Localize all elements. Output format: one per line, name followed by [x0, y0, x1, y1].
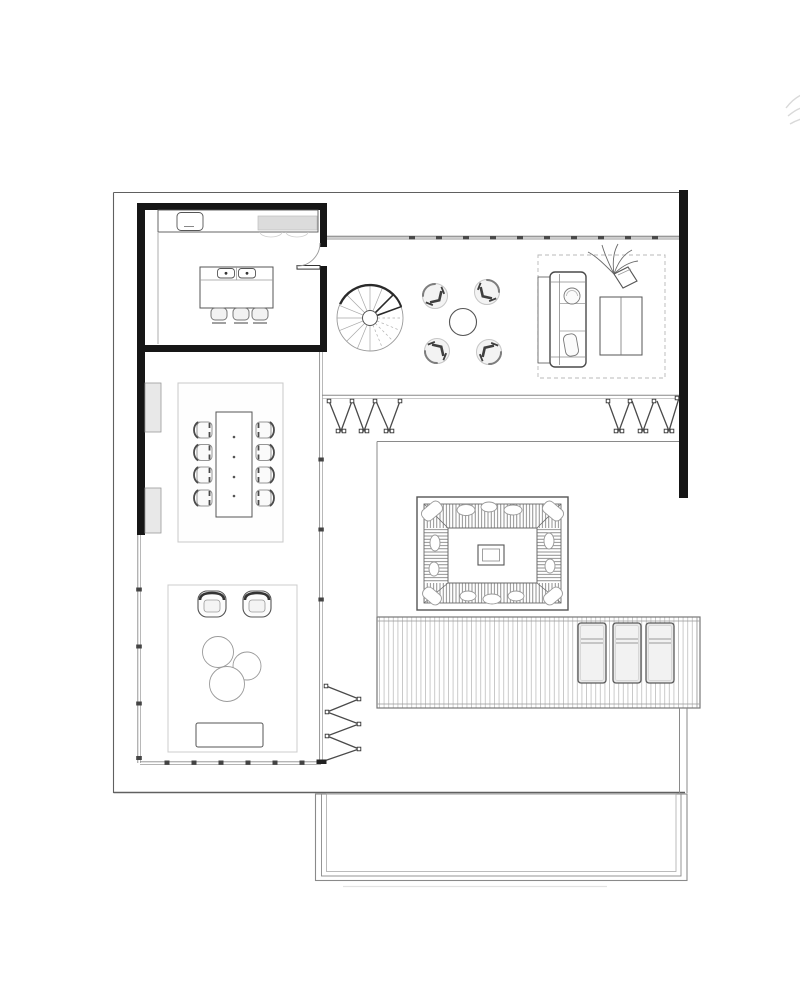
- dining-chair: [256, 490, 274, 506]
- tub-chair: [243, 591, 271, 617]
- dining-room: [145, 383, 283, 542]
- east-glass-wall: [318, 352, 323, 764]
- wall-cabinet: [145, 488, 161, 533]
- floor-plan-page: [0, 0, 800, 1000]
- dining-chair: [194, 490, 212, 506]
- tub-chair: [198, 591, 226, 617]
- dining-chair: [256, 422, 274, 438]
- folding-door-north-right: [606, 396, 679, 433]
- family-lounge: [168, 585, 297, 752]
- pool-terrace: [316, 794, 688, 887]
- kitchen: [158, 210, 320, 344]
- wall-cabinet: [145, 383, 161, 432]
- bar-stool: [233, 308, 249, 323]
- east-wall: [679, 190, 688, 498]
- round-side-table: [450, 309, 477, 336]
- folding-door-north-left: [327, 399, 402, 433]
- dining-chair: [194, 422, 212, 438]
- sofa-console: [538, 277, 550, 363]
- armchair: [417, 278, 452, 313]
- kitchen-door: [297, 243, 320, 269]
- armchair: [419, 333, 454, 368]
- deck-to-pool-connector: [680, 708, 688, 793]
- kitchen-south-wall: [137, 345, 327, 352]
- watermark-fragment: [786, 95, 800, 124]
- sofa: [550, 272, 586, 367]
- folding-door-southeast: [317, 684, 361, 764]
- folding-door-track-north: [322, 395, 679, 398]
- sun-lounger: [646, 623, 674, 683]
- door-swing-arc: [297, 243, 320, 266]
- west-wall: [137, 203, 145, 535]
- dining-table: [216, 412, 252, 517]
- kitchen-island: [200, 267, 273, 308]
- dining-chair: [194, 467, 212, 483]
- dining-chair: [256, 467, 274, 483]
- stair-newel: [363, 311, 378, 326]
- nesting-table: [203, 637, 234, 668]
- bar-stool: [252, 308, 268, 323]
- coffee-table: [600, 297, 642, 355]
- kitchen-east-wall-upper: [320, 210, 327, 247]
- floor-plan-drawing: [0, 0, 800, 1000]
- armchair: [471, 334, 506, 369]
- south-glass-wall: [140, 761, 321, 765]
- cooktop-appliance: [258, 216, 317, 230]
- pit-table: [478, 545, 504, 565]
- sunken-lounge: [417, 497, 568, 610]
- west-glass-wall: [136, 535, 142, 763]
- bar-stool: [211, 308, 227, 323]
- dining-chair: [194, 445, 212, 461]
- deck: [377, 617, 700, 708]
- sun-lounger: [613, 623, 641, 683]
- plant-pot: [614, 267, 637, 288]
- living-room: [538, 244, 665, 378]
- sun-lounger: [578, 623, 606, 683]
- nesting-table: [210, 667, 245, 702]
- north-glass-wall: [327, 236, 679, 239]
- kitchen-sink: [177, 213, 203, 231]
- track-end-cap: [317, 760, 327, 765]
- armchair: [469, 274, 504, 309]
- bench: [196, 723, 263, 747]
- conversation-corner: [417, 274, 506, 369]
- kitchen-north-wall: [137, 203, 327, 210]
- kitchen-east-wall-lower: [320, 266, 327, 352]
- potted-plant: [588, 244, 638, 288]
- spiral-staircase: [337, 285, 403, 351]
- dining-chair: [256, 445, 274, 461]
